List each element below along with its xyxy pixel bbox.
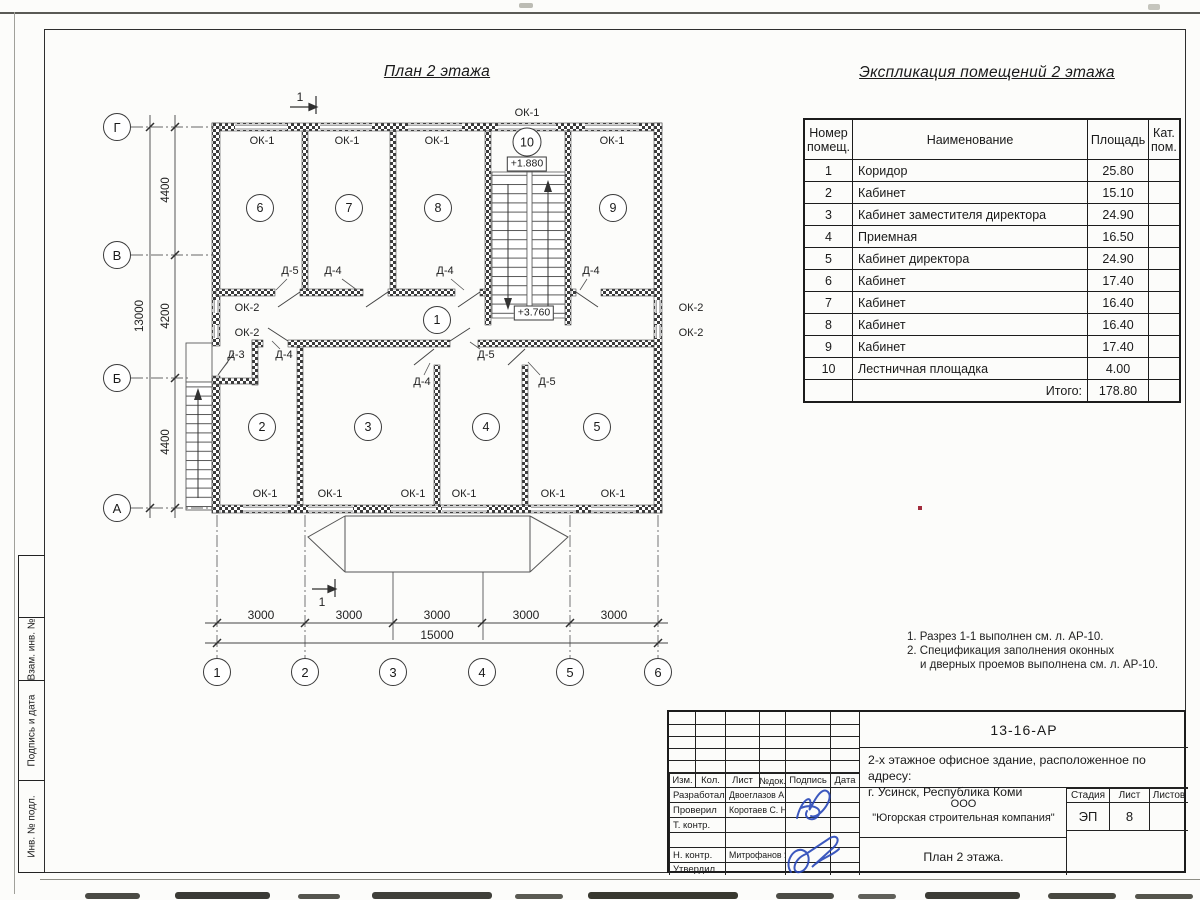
dim-3000: 3000 — [248, 608, 275, 622]
org-line1: ООО — [860, 797, 1067, 811]
room-circle-8: 8 — [424, 194, 452, 222]
scan-bottom-smudges — [0, 888, 1200, 900]
room-circle-10: 10 — [513, 128, 542, 157]
room-name: Кабинет — [853, 292, 1088, 314]
room-circle-6: 6 — [246, 194, 274, 222]
empty-cell — [1149, 380, 1180, 403]
room-area: 16.40 — [1088, 314, 1149, 336]
revision-grid-cell — [669, 712, 696, 773]
table-row: 4Приемная16.50 — [804, 226, 1180, 248]
dim-3000: 3000 — [513, 608, 540, 622]
room-cat — [1149, 292, 1180, 314]
axis-circle-5: 5 — [556, 658, 584, 686]
side-stamp-label: Инв. № подл. — [27, 795, 38, 857]
smudge — [925, 892, 1020, 899]
revision-row-lines — [669, 760, 859, 761]
axis-circle-v: В — [103, 241, 131, 269]
level-mark-corridor: +3.760 — [514, 306, 554, 321]
smudge — [588, 892, 738, 899]
table-row: 2Кабинет15.10 — [804, 182, 1180, 204]
name-developed: Двоеглазов А. В. — [725, 787, 786, 803]
window-label-ok1: ОК-1 — [335, 135, 360, 147]
room-number: 4 — [804, 226, 853, 248]
window-label-ok1: ОК-1 — [250, 135, 275, 147]
room-name: Кабинет — [853, 336, 1088, 358]
level-mark-stair: +1.880 — [507, 157, 547, 172]
empty-cell — [725, 832, 786, 848]
door-label-d4: Д-4 — [436, 265, 453, 277]
section-mark-1-bottom: 1 — [319, 595, 326, 609]
room-cat — [1149, 314, 1180, 336]
total-label: Итого: — [853, 380, 1088, 403]
room-name: Кабинет — [853, 182, 1088, 204]
empty-cell — [725, 817, 786, 833]
revision-grid-cell — [725, 712, 760, 773]
door-label-d4: Д-4 — [413, 376, 430, 388]
axis-circle-a: А — [103, 494, 131, 522]
col-header-cat: Кат.пом. — [1149, 119, 1180, 160]
room-circle-9: 9 — [599, 194, 627, 222]
room-name: Лестничная площадка — [853, 358, 1088, 380]
window-label-ok1: ОК-1 — [515, 107, 540, 119]
sheets-header-cell: Листов — [1149, 788, 1188, 803]
room-cat — [1149, 160, 1180, 182]
exterior-stair — [186, 343, 212, 510]
dim-4200: 4200 — [160, 303, 172, 329]
smudge — [858, 894, 896, 899]
room-name: Приемная — [853, 226, 1088, 248]
smudge — [776, 893, 834, 899]
table-row: 6Кабинет17.40 — [804, 270, 1180, 292]
col-header-izm: Изм. — [669, 773, 696, 788]
side-stamp-podpis: Подпись и дата — [18, 680, 45, 781]
window-label-ok1: ОК-1 — [425, 135, 450, 147]
table-row: 7Кабинет16.40 — [804, 292, 1180, 314]
room-number: 10 — [804, 358, 853, 380]
red-speck — [918, 506, 922, 510]
room-area: 4.00 — [1088, 358, 1149, 380]
window-label-ok1: ОК-1 — [318, 488, 343, 500]
note-line: и дверных проемов выполнена см. л. АР-10… — [907, 658, 1158, 672]
sheet-title-cell: План 2 этажа. — [859, 837, 1067, 875]
stage-header-cell: Стадия — [1066, 788, 1110, 803]
sheet-value-cell: 8 — [1109, 802, 1150, 831]
axis-circle-1: 1 — [203, 658, 231, 686]
col-header-name: Наименование — [853, 119, 1088, 160]
explication-title: Экспликация помещений 2 этажа — [859, 64, 1115, 82]
empty-row — [669, 832, 726, 848]
side-stamp-vzam: Взам. инв. № — [18, 617, 45, 681]
bottom-right-empty-cell — [1066, 830, 1188, 875]
smudge — [85, 893, 140, 899]
room-area: 15.10 — [1088, 182, 1149, 204]
role-tcontrol: Т. контр. — [669, 817, 726, 833]
table-row: 1Коридор25.80 — [804, 160, 1180, 182]
drawing-sheet: План 2 этажа ОК-1 ОК-1 ОК-1 ОК-1 ОК-1 ОК… — [0, 0, 1200, 900]
table-row: 5Кабинет директора24.90 — [804, 248, 1180, 270]
signature-scribbles — [779, 772, 879, 875]
room-number: 9 — [804, 336, 853, 358]
section-mark-1-top: 1 — [297, 90, 304, 104]
dim-3000: 3000 — [424, 608, 451, 622]
side-stamp-empty — [18, 555, 45, 618]
table-total-row: Итого:178.80 — [804, 380, 1180, 403]
window-label-ok1: ОК-1 — [452, 488, 477, 500]
room-name: Кабинет директора — [853, 248, 1088, 270]
col-header-kol: Кол. — [695, 773, 726, 788]
notes: 1. Разрез 1-1 выполнен см. л. АР-10. 2. … — [907, 630, 1158, 672]
org-line2: "Югорская строительная компания" — [860, 811, 1067, 825]
dim-3000: 3000 — [336, 608, 363, 622]
table-row: 9Кабинет17.40 — [804, 336, 1180, 358]
room-cat — [1149, 226, 1180, 248]
title-block: Изм. Кол. Лист №док. Подпись Дата Разраб… — [667, 710, 1186, 873]
smudge — [175, 892, 270, 899]
room-name: Кабинет — [853, 270, 1088, 292]
revision-grid-cell — [759, 712, 786, 773]
organization-cell: ООО "Югорская строительная компания" — [859, 788, 1067, 838]
room-area: 24.90 — [1088, 204, 1149, 226]
revision-row-lines — [669, 724, 859, 725]
table-header-row: Номерпомещ. Наименование Площадь Кат.пом… — [804, 119, 1180, 160]
window-label-ok1: ОК-1 — [600, 135, 625, 147]
note-line: 1. Разрез 1-1 выполнен см. л. АР-10. — [907, 630, 1158, 644]
revision-grid-cell — [785, 712, 831, 773]
room-circle-4: 4 — [472, 413, 500, 441]
room-name: Коридор — [853, 160, 1088, 182]
room-circle-7: 7 — [335, 194, 363, 222]
room-name: Кабинет заместителя директора — [853, 204, 1088, 226]
smudge — [1048, 893, 1116, 899]
room-area: 16.40 — [1088, 292, 1149, 314]
door-label-d3: Д-3 — [227, 349, 244, 361]
room-number: 5 — [804, 248, 853, 270]
window-label-ok1: ОК-1 — [253, 488, 278, 500]
axis-circle-6: 6 — [644, 658, 672, 686]
axis-circle-2: 2 — [291, 658, 319, 686]
door-label-d4: Д-4 — [582, 265, 599, 277]
room-cat — [1149, 336, 1180, 358]
name-checked: Коротаев С. Н. — [725, 802, 786, 818]
room-number: 2 — [804, 182, 853, 204]
window-label-ok2: ОК-2 — [235, 327, 260, 339]
table-row: 3Кабинет заместителя директора24.90 — [804, 204, 1180, 226]
room-cat — [1149, 358, 1180, 380]
dim-3000: 3000 — [601, 608, 628, 622]
object-line1: 2-х этажное офисное здание, расположенно… — [868, 752, 1188, 784]
stairwell — [492, 172, 565, 318]
window-label-ok2: ОК-2 — [235, 302, 260, 314]
doc-number-cell: 13-16-АР — [859, 712, 1188, 748]
table-row: 10Лестничная площадка4.00 — [804, 358, 1180, 380]
axis-circle-4: 4 — [468, 658, 496, 686]
object-name-cell: 2-х этажное офисное здание, расположенно… — [859, 747, 1188, 788]
role-ncontrol: Н. контр. — [669, 847, 726, 863]
revision-grid-cell — [830, 712, 860, 773]
door-label-d5: Д-5 — [538, 376, 555, 388]
axis-circle-3: 3 — [379, 658, 407, 686]
room-cat — [1149, 204, 1180, 226]
window-label-ok1: ОК-1 — [401, 488, 426, 500]
room-number: 7 — [804, 292, 853, 314]
plan-title: План 2 этажа — [384, 63, 490, 81]
name-ncontrol: Митрофанов Я. А. — [725, 847, 786, 863]
door-label-d5: Д-5 — [477, 349, 494, 361]
room-circle-3: 3 — [354, 413, 382, 441]
room-area: 25.80 — [1088, 160, 1149, 182]
role-developed: Разработал — [669, 787, 726, 803]
room-name: Кабинет — [853, 314, 1088, 336]
revision-row-lines — [669, 736, 859, 737]
sheets-value-cell — [1149, 802, 1188, 831]
note-line: 2. Спецификация заполнения оконных — [907, 644, 1158, 658]
axis-circle-g: Г — [103, 113, 131, 141]
room-number: 3 — [804, 204, 853, 226]
smudge — [372, 892, 492, 899]
role-checked: Проверил — [669, 802, 726, 818]
empty-cell — [804, 380, 853, 403]
side-stamp-label: Подпись и дата — [27, 695, 38, 767]
smudge — [515, 894, 563, 899]
stage-value-cell: ЭП — [1066, 802, 1110, 831]
table-row: 8Кабинет16.40 — [804, 314, 1180, 336]
window-label-ok1: ОК-1 — [601, 488, 626, 500]
col-header-number: Номерпомещ. — [804, 119, 853, 160]
room-area: 16.50 — [1088, 226, 1149, 248]
axis-circle-b: Б — [103, 364, 131, 392]
room-number: 1 — [804, 160, 853, 182]
revision-grid-cell — [695, 712, 726, 773]
role-approved: Утвердил — [669, 862, 726, 875]
room-area: 17.40 — [1088, 336, 1149, 358]
room-number: 8 — [804, 314, 853, 336]
room-circle-1: 1 — [423, 306, 451, 334]
empty-cell — [725, 862, 786, 875]
door-label-d4: Д-4 — [275, 349, 292, 361]
room-area: 24.90 — [1088, 248, 1149, 270]
room-area: 17.40 — [1088, 270, 1149, 292]
room-number: 6 — [804, 270, 853, 292]
window-label-ok2: ОК-2 — [679, 302, 704, 314]
side-stamp-inv: Инв. № подл. — [18, 780, 45, 873]
room-cat — [1149, 182, 1180, 204]
room-cat — [1149, 270, 1180, 292]
smudge — [1135, 894, 1193, 899]
dim-4400: 4400 — [160, 177, 172, 203]
col-header-list: Лист — [725, 773, 760, 788]
sheet-header-cell: Лист — [1109, 788, 1150, 803]
window-label-ok2: ОК-2 — [679, 327, 704, 339]
dim-4400: 4400 — [160, 429, 172, 455]
room-circle-2: 2 — [248, 413, 276, 441]
smudge — [298, 894, 340, 899]
dim-13000: 13000 — [134, 300, 146, 332]
col-header-area: Площадь — [1088, 119, 1149, 160]
explication-table: Номерпомещ. Наименование Площадь Кат.пом… — [803, 118, 1181, 403]
door-label-d5: Д-5 — [281, 265, 298, 277]
window-label-ok1: ОК-1 — [541, 488, 566, 500]
room-cat — [1149, 248, 1180, 270]
dim-15000: 15000 — [420, 628, 453, 642]
door-label-d4: Д-4 — [324, 265, 341, 277]
revision-row-lines — [669, 748, 859, 749]
room-circle-5: 5 — [583, 413, 611, 441]
total-value: 178.80 — [1088, 380, 1149, 403]
side-stamp-label: Взам. инв. № — [27, 618, 38, 680]
